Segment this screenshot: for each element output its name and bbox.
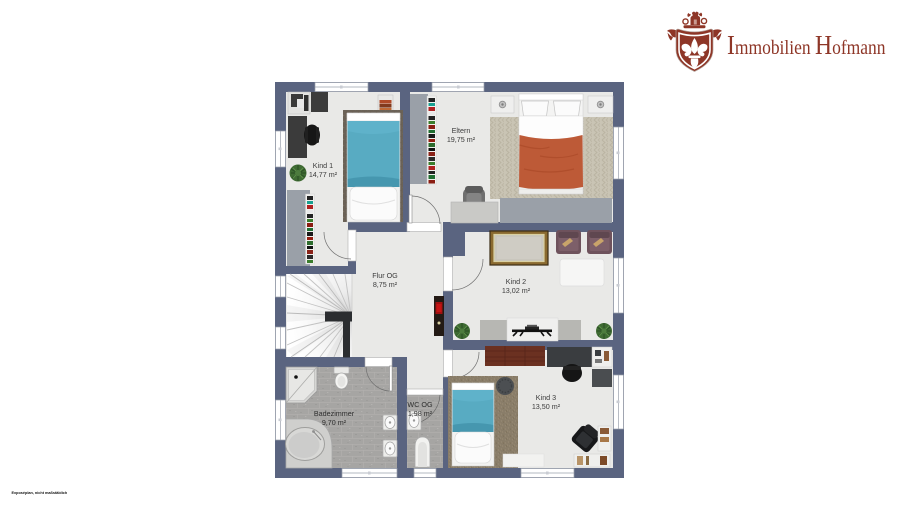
- svg-text:Kind 1: Kind 1: [313, 161, 333, 170]
- svg-text:Eltern: Eltern: [452, 126, 471, 135]
- svg-text:WC OG: WC OG: [407, 400, 433, 409]
- svg-text:13,02 m²: 13,02 m²: [502, 286, 531, 295]
- svg-text:Kind 2: Kind 2: [506, 277, 526, 286]
- svg-text:14,77 m²: 14,77 m²: [309, 170, 338, 179]
- svg-text:8,75 m²: 8,75 m²: [373, 280, 398, 289]
- svg-text:Badezimmer: Badezimmer: [314, 409, 355, 418]
- svg-text:19,75 m²: 19,75 m²: [447, 135, 476, 144]
- svg-text:1,98 m²: 1,98 m²: [408, 409, 433, 418]
- svg-text:13,50 m²: 13,50 m²: [532, 402, 561, 411]
- svg-text:9,70 m²: 9,70 m²: [322, 418, 347, 427]
- svg-text:Kind 3: Kind 3: [536, 393, 556, 402]
- svg-text:Flur OG: Flur OG: [372, 271, 398, 280]
- svg-text:Exposéplan, nicht maßstäblich: Exposéplan, nicht maßstäblich: [12, 491, 68, 495]
